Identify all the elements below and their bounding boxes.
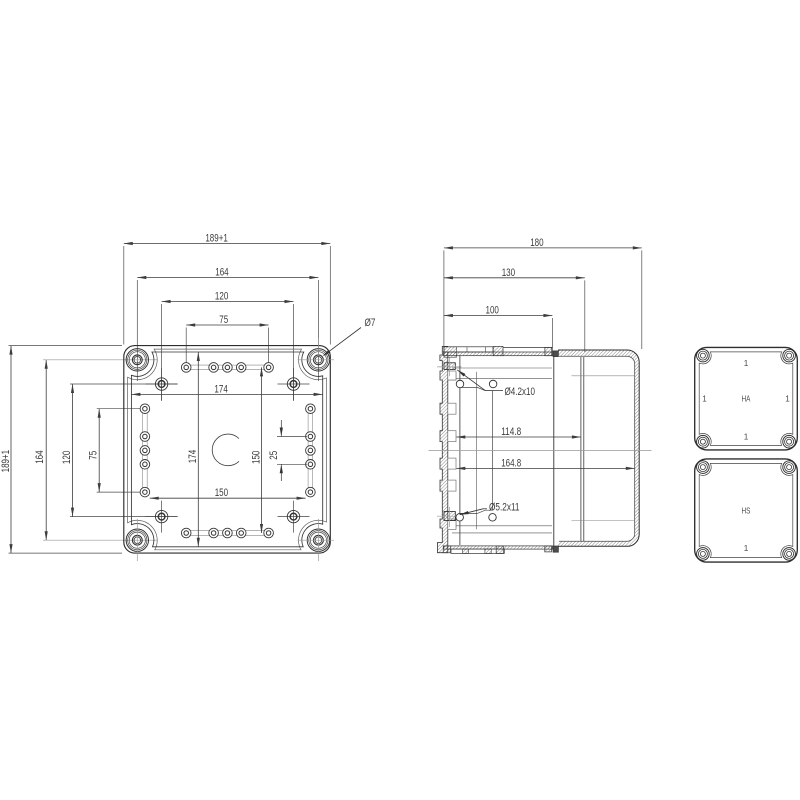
svg-text:164: 164	[215, 267, 228, 279]
svg-text:1: 1	[744, 544, 749, 553]
svg-text:Ø5.2x11: Ø5.2x11	[489, 501, 520, 513]
svg-text:1: 1	[785, 394, 790, 403]
svg-text:114.8: 114.8	[501, 426, 521, 438]
svg-text:164: 164	[34, 450, 46, 463]
svg-text:130: 130	[502, 267, 515, 279]
svg-text:1: 1	[744, 359, 749, 368]
svg-text:174: 174	[214, 383, 227, 395]
svg-text:Ø4.2x10: Ø4.2x10	[505, 386, 536, 398]
svg-text:180: 180	[530, 237, 543, 249]
svg-text:HS: HS	[742, 507, 751, 516]
svg-text:150: 150	[250, 451, 262, 464]
svg-text:120: 120	[61, 451, 73, 464]
svg-text:25: 25	[268, 451, 280, 460]
svg-text:1: 1	[702, 394, 707, 403]
svg-text:150: 150	[215, 487, 228, 499]
svg-text:120: 120	[215, 291, 228, 303]
svg-text:189+1: 189+1	[205, 233, 228, 245]
svg-text:100: 100	[486, 305, 499, 317]
svg-text:75: 75	[88, 451, 100, 460]
svg-text:75: 75	[219, 314, 228, 326]
svg-text:HA: HA	[742, 395, 751, 404]
svg-text:189+1: 189+1	[0, 450, 12, 473]
svg-text:Ø7: Ø7	[365, 317, 376, 329]
svg-text:174: 174	[187, 450, 199, 463]
svg-text:164.8: 164.8	[501, 457, 521, 469]
svg-text:1: 1	[744, 432, 749, 441]
